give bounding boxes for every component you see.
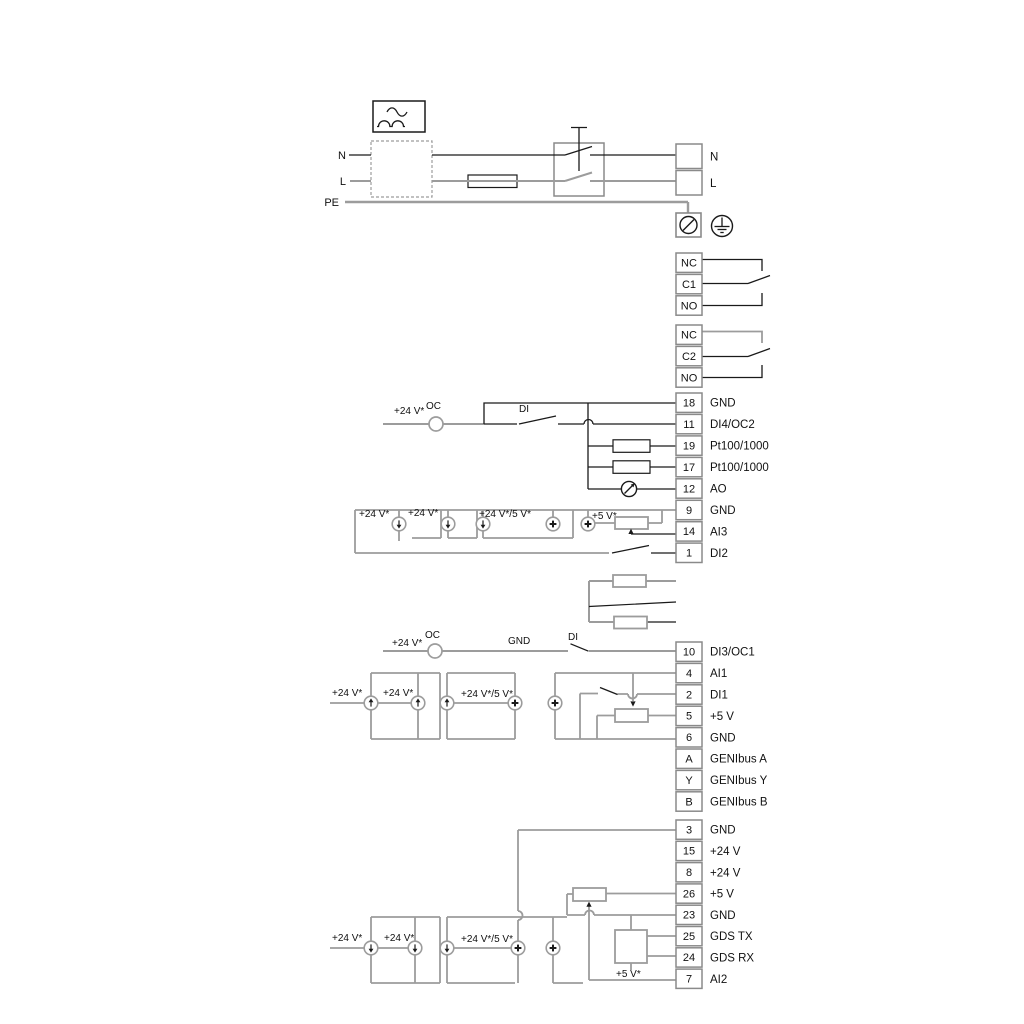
di2-switch xyxy=(612,546,676,554)
potentiometer-icon xyxy=(615,709,648,722)
open-collector-label: OC xyxy=(426,401,441,412)
terminal-label: +5 V xyxy=(710,711,734,723)
terminal-number: 8 xyxy=(686,867,692,879)
terminal-label: Pt100/1000 xyxy=(710,462,769,474)
terminal-label: +24 V xyxy=(710,846,741,858)
terminal-label: GDS RX xyxy=(710,952,754,964)
terminal-number: 9 xyxy=(686,505,692,517)
terminal-number: Y xyxy=(685,775,693,787)
terminal-number: 18 xyxy=(683,398,695,410)
terminal-label: GDS TX xyxy=(710,931,753,943)
mains-terminal-block: NL xyxy=(676,144,718,195)
terminal-number: B xyxy=(685,796,692,808)
terminal-label: GND xyxy=(710,398,736,410)
supply-label: +24 V* xyxy=(392,638,422,649)
potentiometer-icon xyxy=(573,888,606,901)
di1-switch xyxy=(600,688,618,695)
terminal-number: 12 xyxy=(683,483,695,495)
io-terminal-block-3: 3GND15+24 V8+24 V26+5 V23GND25GDS TX24GD… xyxy=(676,820,754,988)
terminal-label: DI2 xyxy=(710,548,728,560)
terminal-label: GND xyxy=(710,910,736,922)
liqtec-sensor-icon xyxy=(613,575,646,587)
terminal-number: 25 xyxy=(683,931,695,943)
terminal-label: L xyxy=(710,178,717,190)
terminal-label: DI1 xyxy=(710,690,728,702)
digital-input-label: DI xyxy=(568,632,578,643)
terminal-number: 15 xyxy=(683,846,695,858)
terminal-cell xyxy=(676,144,702,169)
terminal-number: 1 xyxy=(686,548,692,560)
mains-pe-label: PE xyxy=(324,197,339,209)
wire-labels: NLPE+24 V*OCDI+24 V*+24 V*+24 V*/5 V*+5 … xyxy=(324,150,641,980)
gds-supply-label: +5 V* xyxy=(616,969,641,980)
current-source-icon xyxy=(440,941,454,955)
pe-wire xyxy=(345,202,688,213)
supply-label: +24 V* xyxy=(394,406,424,417)
terminal-number: NC xyxy=(681,258,697,270)
terminal-label: GND xyxy=(710,505,736,517)
terminal-number: 24 xyxy=(683,952,695,964)
terminal-cell xyxy=(676,171,702,196)
analog-output-meter-icon xyxy=(621,481,636,496)
terminal-number: NC xyxy=(681,330,697,342)
terminal-label: +5 V xyxy=(710,889,734,901)
mains-section xyxy=(345,101,733,237)
terminal-label: DI4/OC2 xyxy=(710,419,755,431)
open-collector-icon xyxy=(429,417,443,431)
supply-label: +24 V*/5 V* xyxy=(479,509,531,520)
ac-dc-converter-icon xyxy=(373,101,425,132)
terminal-number: 17 xyxy=(683,462,695,474)
supply-label: +24 V*/5 V* xyxy=(461,934,513,945)
io-terminal-block-2: 10DI3/OC14AI12DI15+5 V6GNDAGENIbus AYGEN… xyxy=(676,642,768,811)
current-source-icon xyxy=(364,696,378,710)
current-source-icon xyxy=(392,517,406,531)
terminal-label: AI2 xyxy=(710,974,727,986)
terminal-number: NO xyxy=(681,372,698,384)
terminal-label: GENIbus B xyxy=(710,797,768,809)
liqtec-sensor-icon xyxy=(614,617,647,629)
supply-label: +24 V* xyxy=(408,508,438,519)
supply-label: +24 V*/5 V* xyxy=(461,689,513,700)
terminal-number: 14 xyxy=(683,526,695,538)
terminal-number: 23 xyxy=(683,910,695,922)
supply-label: +24 V* xyxy=(332,688,362,699)
terminal-label: N xyxy=(710,151,718,163)
open-collector-icon xyxy=(428,644,442,658)
digital-input-label: DI xyxy=(519,404,529,415)
supply-label: +24 V* xyxy=(384,933,414,944)
di3-switch xyxy=(571,644,589,651)
terminal-label: AI3 xyxy=(710,526,727,538)
current-source-icon xyxy=(441,517,455,531)
potentiometer-icon xyxy=(615,517,648,529)
terminal-number: NO xyxy=(681,300,698,312)
io-terminal-block-1: 18GND11DI4/OC219Pt100/100017Pt100/100012… xyxy=(676,393,769,563)
terminal-number: 7 xyxy=(686,974,692,986)
terminal-number: 4 xyxy=(686,668,692,680)
terminal-number: 26 xyxy=(683,888,695,900)
supply-label: +24 V* xyxy=(332,933,362,944)
supply-label: +24 V* xyxy=(383,688,413,699)
relay-1-block: NCC1NO xyxy=(676,253,702,315)
terminal-number: C2 xyxy=(682,351,696,363)
supply-label: +5 V* xyxy=(592,511,617,522)
terminal-label: DI3/OC1 xyxy=(710,647,755,659)
protective-earth-icon xyxy=(712,216,733,237)
terminal-blocks: NLNCC1NONCC2NO18GND11DI4/OC219Pt100/1000… xyxy=(676,144,769,988)
terminal-number: 3 xyxy=(686,824,692,836)
relay-2-block: NCC2NO xyxy=(676,325,702,387)
current-source-icon xyxy=(364,941,378,955)
terminal-label: GENIbus Y xyxy=(710,775,768,787)
voltage-source-icon xyxy=(546,517,560,531)
terminal-label: AI1 xyxy=(710,668,727,680)
mains-n-label: N xyxy=(338,150,346,162)
filter-box xyxy=(371,141,432,197)
open-collector-label: OC xyxy=(425,630,440,641)
wiring-diagram-page: NLNCC1NONCC2NO18GND11DI4/OC219Pt100/1000… xyxy=(0,0,1024,1024)
wiring-diagram: NLNCC1NONCC2NO18GND11DI4/OC219Pt100/1000… xyxy=(0,0,1024,1024)
terminal-number: 2 xyxy=(686,689,692,701)
terminal-label: GND xyxy=(710,825,736,837)
gnd-label: GND xyxy=(508,636,530,647)
gds-ai2-section xyxy=(330,830,676,983)
liqtec-section xyxy=(589,575,676,629)
terminal-label: AO xyxy=(710,484,727,496)
voltage-source-icon xyxy=(548,696,562,710)
terminal-label: Pt100/1000 xyxy=(710,441,769,453)
terminal-label: +24 V xyxy=(710,867,741,879)
supply-option-wires xyxy=(330,673,676,739)
pt100-resistor-icon xyxy=(613,461,650,474)
terminal-number: A xyxy=(685,754,693,766)
wiper-arrow-icon xyxy=(630,701,635,706)
terminal-number: 10 xyxy=(683,647,695,659)
supply-label: +24 V* xyxy=(359,509,389,520)
mains-l-label: L xyxy=(340,176,346,188)
relay2-nc-wire xyxy=(702,332,762,344)
terminal-number: C1 xyxy=(682,279,696,291)
terminal-number: 19 xyxy=(683,440,695,452)
terminal-number: 11 xyxy=(683,419,694,431)
relay-contact-wires xyxy=(702,260,770,378)
terminal-label: GND xyxy=(710,732,736,744)
ai1-di1-section xyxy=(330,673,676,739)
terminal-label: GENIbus A xyxy=(710,754,767,766)
relay-outputs xyxy=(702,260,770,378)
terminal-number: 6 xyxy=(686,732,692,744)
neutral-wire xyxy=(349,128,676,172)
terminal-number: 5 xyxy=(686,711,692,723)
voltage-source-icon xyxy=(546,941,560,955)
wiper-arrow-icon xyxy=(586,902,591,907)
current-source-icon xyxy=(440,696,454,710)
voltage-source-icon xyxy=(511,941,525,955)
gds-sensor-box xyxy=(615,930,647,963)
pt100-resistor-icon xyxy=(613,440,650,453)
